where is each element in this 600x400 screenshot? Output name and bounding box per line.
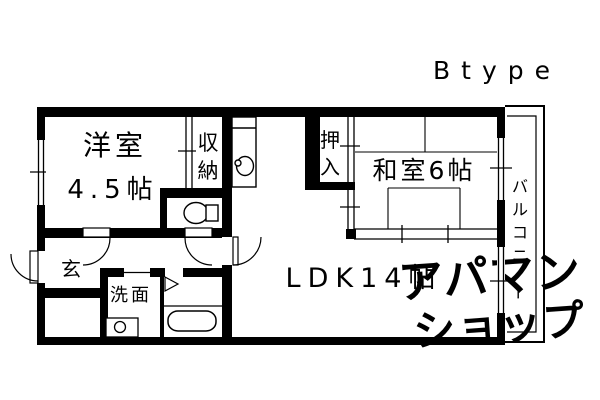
wall-hall-ldk-lower <box>222 265 232 337</box>
wall-oshiire-bottom <box>305 182 355 190</box>
wall-partition-junction <box>346 229 356 239</box>
genkan-label: 玄 <box>61 257 81 281</box>
ldk-label: LDK14帖 <box>286 263 443 294</box>
wall-right-3 <box>497 313 505 345</box>
bath-door-opening <box>165 268 183 277</box>
wall-bottom <box>37 337 505 345</box>
ldk-door-opening <box>222 237 232 265</box>
youshitsu-size-label: 4.5帖 <box>67 175 158 205</box>
washitsu-label: 和室6帖 <box>373 156 476 185</box>
floor-plan-page: アパマン ショップ <box>0 0 600 400</box>
wall-right-1 <box>497 107 505 138</box>
wall-top <box>37 107 505 117</box>
wall-hall-ldk-upper <box>222 117 232 237</box>
washbasin-icon <box>106 318 138 337</box>
wall-senmen-top <box>100 268 222 277</box>
plan-type-title: Btype <box>433 56 561 85</box>
wall-oshiire-left <box>305 117 320 190</box>
wall-toilet-left <box>160 198 167 228</box>
wall-storage-top <box>37 288 108 298</box>
wall-bath-divider <box>160 277 164 337</box>
wall-right-2 <box>497 200 505 247</box>
senmen-label: 洗面 <box>110 285 152 306</box>
wall-left-upper <box>37 107 45 140</box>
floor-plan: アパマン ショップ <box>0 0 600 400</box>
kitchen-sink-icon <box>232 117 256 187</box>
toilet-icon <box>184 203 218 224</box>
wall-toilet-top <box>160 188 232 198</box>
youshitsu-name-label: 洋室 <box>83 129 147 162</box>
